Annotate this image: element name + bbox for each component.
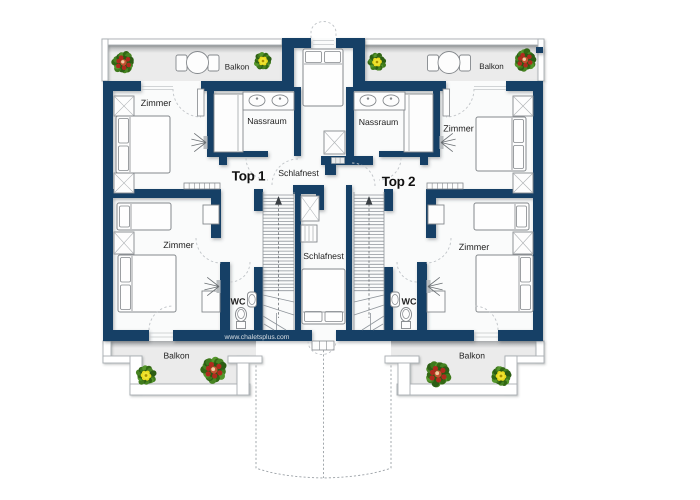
svg-text:WC: WC <box>231 297 246 307</box>
svg-text:Zimmer: Zimmer <box>443 124 474 134</box>
svg-text:Zimmer: Zimmer <box>141 98 172 108</box>
svg-text:WC: WC <box>402 297 417 307</box>
svg-text:Top 2: Top 2 <box>382 174 416 189</box>
svg-text:Balkon: Balkon <box>459 351 485 361</box>
svg-text:Nassraum: Nassraum <box>247 116 287 126</box>
svg-text:Balkon: Balkon <box>164 351 190 361</box>
svg-text:Schlafnest: Schlafnest <box>278 168 319 178</box>
svg-text:www.chaletsplus.com: www.chaletsplus.com <box>224 334 290 341</box>
svg-text:Schlafnest: Schlafnest <box>303 251 344 261</box>
svg-text:Top 1: Top 1 <box>232 169 266 184</box>
svg-text:Balkon: Balkon <box>225 63 249 72</box>
svg-text:Nassraum: Nassraum <box>359 117 399 127</box>
svg-text:Zimmer: Zimmer <box>459 242 490 252</box>
svg-text:Zimmer: Zimmer <box>163 240 194 250</box>
svg-text:Balkon: Balkon <box>479 62 503 71</box>
